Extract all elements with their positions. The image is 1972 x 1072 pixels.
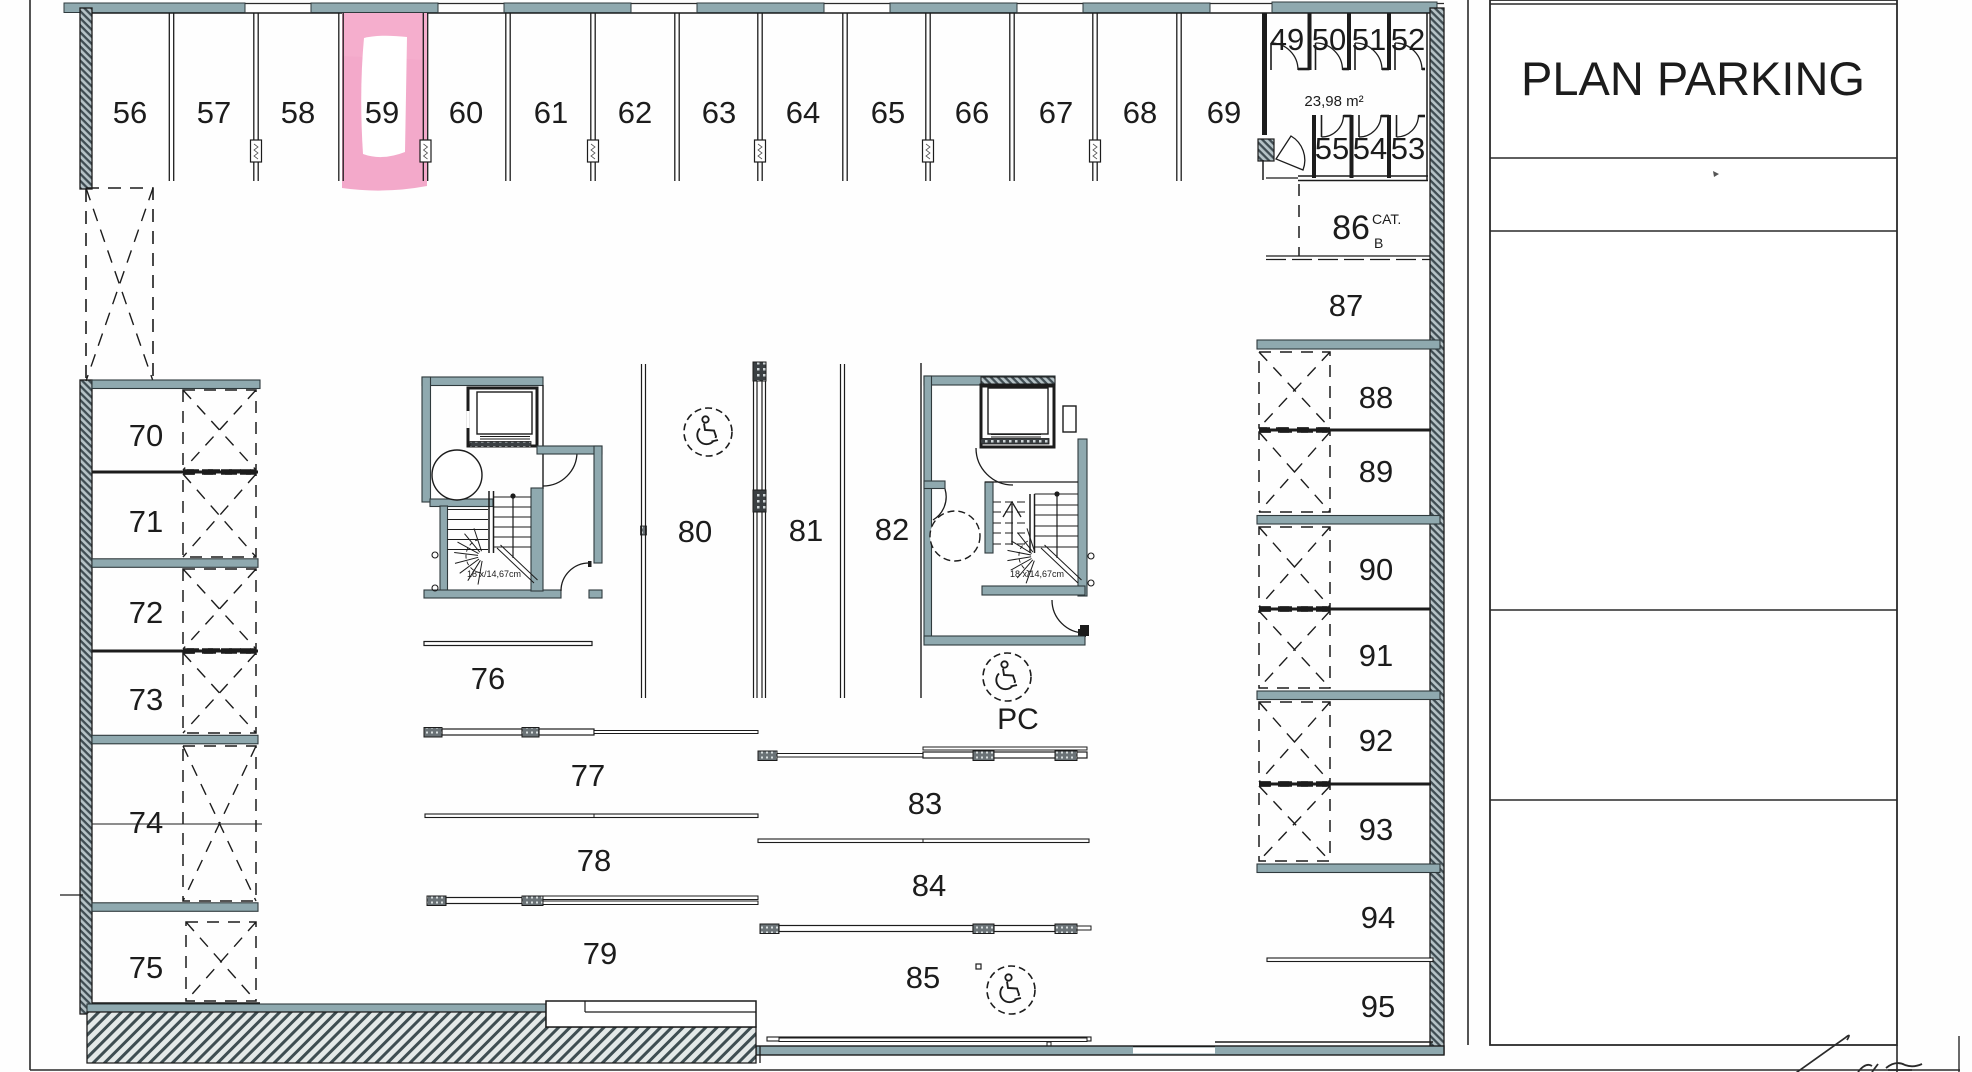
svg-text:91: 91: [1359, 638, 1393, 673]
svg-text:72: 72: [129, 595, 163, 630]
svg-text:69: 69: [1207, 95, 1241, 130]
svg-text:75: 75: [129, 950, 163, 985]
svg-text:73: 73: [129, 682, 163, 717]
svg-text:51: 51: [1352, 22, 1386, 57]
svg-text:86: 86: [1332, 209, 1370, 247]
svg-text:23,98 m²: 23,98 m²: [1304, 93, 1363, 110]
svg-text:83: 83: [908, 786, 942, 821]
svg-text:59: 59: [365, 95, 399, 130]
svg-text:82: 82: [875, 512, 909, 547]
svg-text:88: 88: [1359, 380, 1393, 415]
svg-text:93: 93: [1359, 812, 1393, 847]
svg-text:68: 68: [1123, 95, 1157, 130]
svg-text:85: 85: [906, 960, 940, 995]
svg-text:63: 63: [702, 95, 736, 130]
svg-text:77: 77: [571, 758, 605, 793]
svg-text:49: 49: [1270, 22, 1304, 57]
svg-text:62: 62: [618, 95, 652, 130]
svg-text:94: 94: [1361, 900, 1395, 935]
svg-text:71: 71: [129, 504, 163, 539]
svg-text:54: 54: [1353, 131, 1387, 166]
svg-text:81: 81: [789, 513, 823, 548]
svg-text:B: B: [1374, 235, 1383, 251]
svg-text:18 x/14,67cm: 18 x/14,67cm: [1010, 569, 1064, 579]
svg-text:84: 84: [912, 868, 946, 903]
svg-text:61: 61: [534, 95, 568, 130]
svg-text:79: 79: [583, 936, 617, 971]
svg-text:64: 64: [786, 95, 820, 130]
svg-text:80: 80: [678, 514, 712, 549]
svg-text:66: 66: [955, 95, 989, 130]
svg-text:90: 90: [1359, 552, 1393, 587]
svg-text:87: 87: [1329, 288, 1363, 323]
svg-text:78: 78: [577, 843, 611, 878]
svg-text:65: 65: [871, 95, 905, 130]
svg-text:PLAN PARKING: PLAN PARKING: [1521, 52, 1865, 105]
svg-text:57: 57: [197, 95, 231, 130]
svg-text:95: 95: [1361, 989, 1395, 1024]
svg-text:58: 58: [281, 95, 315, 130]
svg-text:PC: PC: [997, 703, 1039, 736]
svg-text:92: 92: [1359, 723, 1393, 758]
svg-text:CAT.: CAT.: [1372, 211, 1401, 227]
svg-text:89: 89: [1359, 454, 1393, 489]
svg-text:76: 76: [471, 661, 505, 696]
svg-text:70: 70: [129, 418, 163, 453]
svg-text:50: 50: [1312, 22, 1346, 57]
svg-text:67: 67: [1039, 95, 1073, 130]
svg-text:18 x/14,67cm: 18 x/14,67cm: [467, 569, 521, 579]
svg-text:56: 56: [113, 95, 147, 130]
svg-text:55: 55: [1315, 131, 1349, 166]
svg-text:74: 74: [129, 805, 163, 840]
svg-text:60: 60: [449, 95, 483, 130]
svg-text:52: 52: [1391, 22, 1425, 57]
svg-text:53: 53: [1391, 131, 1425, 166]
